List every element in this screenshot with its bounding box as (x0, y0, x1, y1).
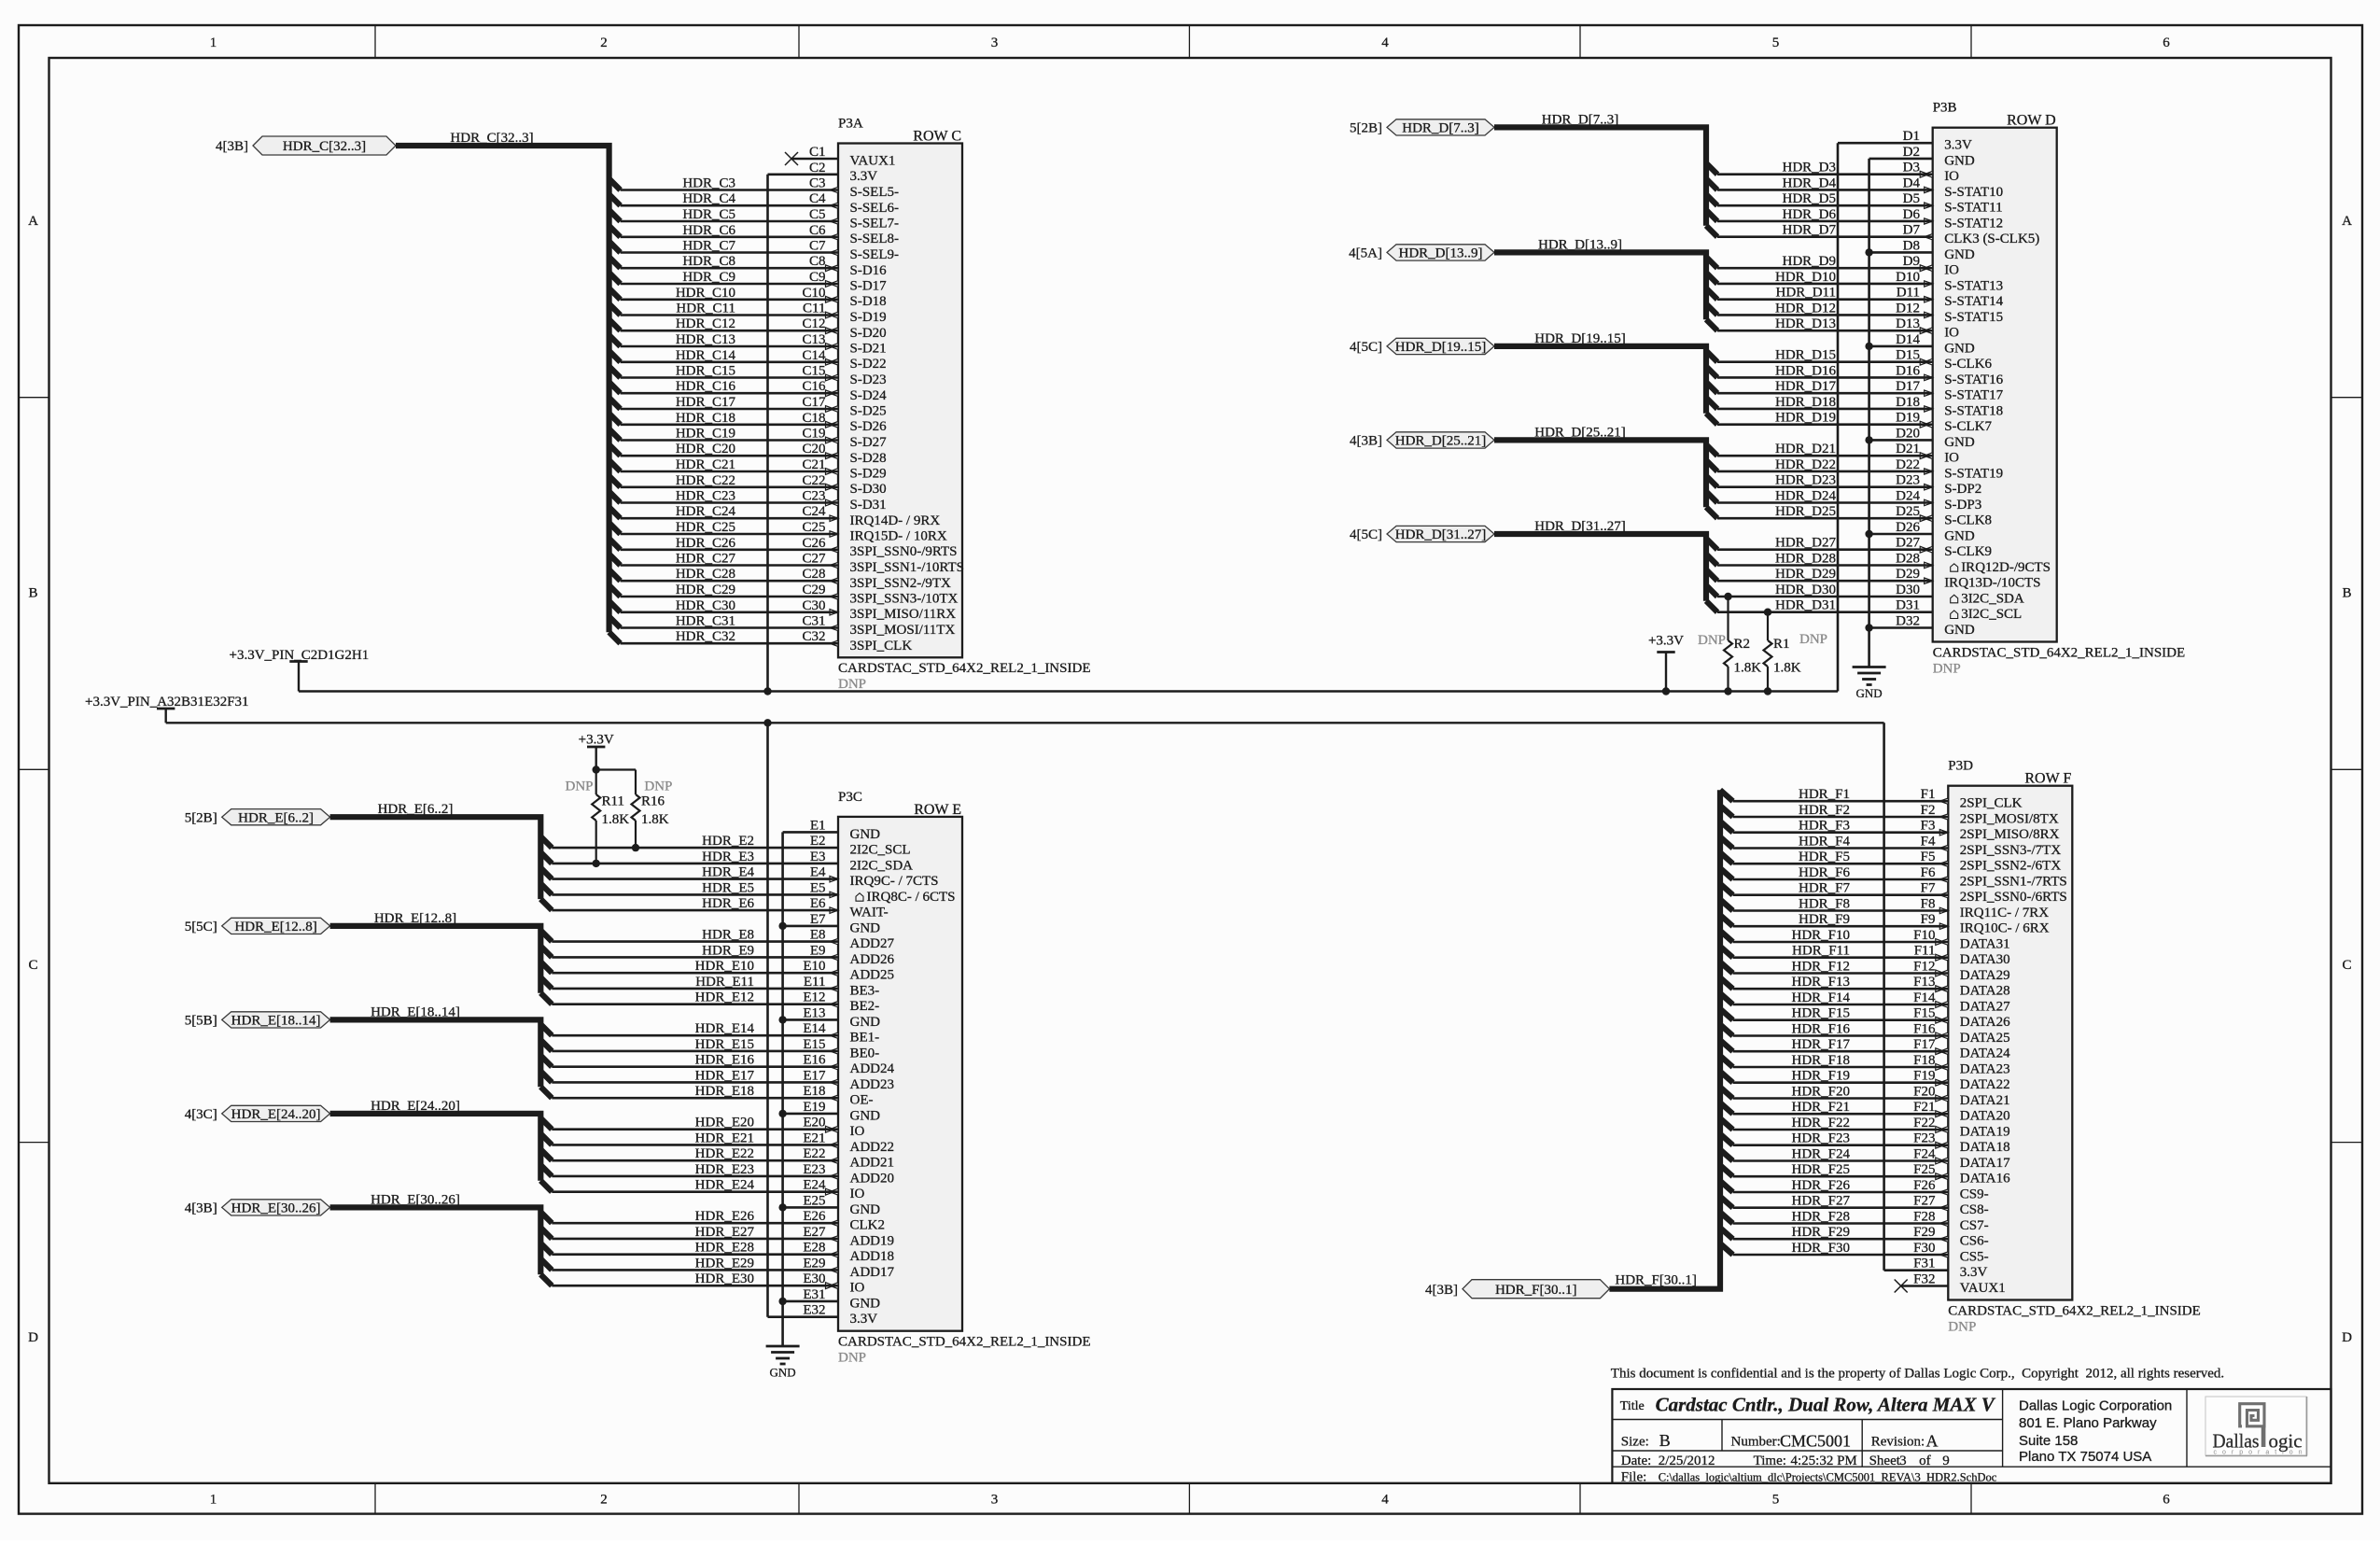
svg-text:HDR_F13: HDR_F13 (1791, 975, 1850, 990)
svg-text:IO: IO (850, 1124, 865, 1139)
svg-text:E18: E18 (803, 1084, 825, 1099)
svg-text:ADD19: ADD19 (850, 1233, 895, 1248)
svg-text:F27: F27 (1913, 1194, 1936, 1209)
svg-text:F17: F17 (1913, 1037, 1936, 1052)
svg-text:S-CLK7: S-CLK7 (1944, 419, 1992, 434)
svg-text:2SPI_SSN2-/6TX: 2SPI_SSN2-/6TX (1960, 859, 2062, 874)
svg-text:CS6-: CS6- (1960, 1234, 1989, 1249)
svg-text:F12: F12 (1913, 960, 1935, 975)
svg-text:D24: D24 (1896, 489, 1920, 504)
svg-text:F20: F20 (1913, 1085, 1935, 1100)
svg-text:CARDSTAC_STD_64X2_REL2_1_INSID: CARDSTAC_STD_64X2_REL2_1_INSIDE (838, 1335, 1090, 1350)
svg-text:HDR_D27: HDR_D27 (1775, 536, 1837, 551)
svg-text:S-STAT15: S-STAT15 (1944, 310, 2003, 325)
svg-text:CARDSTAC_STD_64X2_REL2_1_INSID: CARDSTAC_STD_64X2_REL2_1_INSIDE (1933, 646, 2185, 661)
svg-text:S-DP2: S-DP2 (1944, 482, 1981, 497)
svg-text:F15: F15 (1913, 1006, 1935, 1021)
svg-text:F7: F7 (1921, 881, 1936, 896)
svg-text:HDR_D16: HDR_D16 (1775, 363, 1837, 378)
svg-text:HDR_F22: HDR_F22 (1791, 1116, 1850, 1131)
svg-text:IRQ13D-/10CTS: IRQ13D-/10CTS (1944, 576, 2040, 591)
svg-text:HDR_E[24..20]: HDR_E[24..20] (371, 1099, 460, 1114)
svg-text:F18: F18 (1913, 1053, 1935, 1068)
svg-text:HDR_F14: HDR_F14 (1791, 990, 1850, 1005)
svg-text:C16: C16 (802, 379, 826, 394)
svg-text:1: 1 (210, 35, 217, 50)
svg-text:S-D28: S-D28 (850, 451, 887, 466)
svg-text:2: 2 (600, 35, 608, 50)
svg-text:2SPI_MISO/8RX: 2SPI_MISO/8RX (1960, 827, 2060, 842)
svg-text:HDR_D[13..9]: HDR_D[13..9] (1538, 237, 1622, 252)
svg-text:3SPI_CLK: 3SPI_CLK (850, 639, 913, 653)
svg-text:HDR_E17: HDR_E17 (695, 1068, 755, 1083)
svg-text:F31: F31 (1913, 1257, 1935, 1271)
svg-text:E3: E3 (810, 850, 826, 864)
svg-text:2SPI_CLK: 2SPI_CLK (1960, 796, 2023, 811)
svg-text:File:: File: (1621, 1470, 1647, 1485)
svg-text:HDR_D12: HDR_D12 (1775, 301, 1836, 316)
svg-text:HDR_D25: HDR_D25 (1775, 504, 1836, 519)
svg-text:HDR_C15: HDR_C15 (676, 364, 735, 379)
svg-text:CLK2: CLK2 (850, 1218, 886, 1233)
svg-text:ADD20: ADD20 (850, 1171, 895, 1186)
svg-text:HDR_D[7..3]: HDR_D[7..3] (1542, 112, 1619, 127)
svg-text:HDR_C[32..3]: HDR_C[32..3] (283, 139, 366, 154)
svg-text:GND: GND (850, 1108, 881, 1123)
svg-text:HDR_E2: HDR_E2 (702, 834, 754, 849)
svg-text:F2: F2 (1921, 803, 1936, 818)
svg-text:D19: D19 (1896, 411, 1920, 426)
svg-text:S-D24: S-D24 (850, 388, 888, 403)
svg-text:HDR_E[24..20]: HDR_E[24..20] (231, 1107, 321, 1122)
svg-text:D5: D5 (1903, 191, 1920, 206)
svg-text:HDR_D[19..15]: HDR_D[19..15] (1395, 340, 1487, 355)
svg-text:HDR_C14: HDR_C14 (676, 348, 736, 363)
svg-text:HDR_D13: HDR_D13 (1775, 316, 1836, 331)
svg-text:2I2C_SCL: 2I2C_SCL (850, 843, 911, 858)
svg-text:CARDSTAC_STD_64X2_REL2_1_INSID: CARDSTAC_STD_64X2_REL2_1_INSIDE (838, 661, 1090, 676)
svg-text:D32: D32 (1896, 614, 1920, 629)
svg-text:C6: C6 (809, 223, 826, 238)
svg-text:Title: Title (1620, 1399, 1645, 1413)
svg-text:S-SEL8-: S-SEL8- (850, 232, 900, 246)
svg-text:GND: GND (1944, 341, 1975, 356)
svg-text:HDR_F[30..1]: HDR_F[30..1] (1495, 1283, 1577, 1298)
svg-text:HDR_E8: HDR_E8 (702, 928, 754, 943)
svg-text:HDR_F5: HDR_F5 (1799, 850, 1850, 864)
svg-text:IRQ10C- / 6RX: IRQ10C- / 6RX (1960, 921, 2050, 936)
svg-text:D26: D26 (1896, 520, 1920, 535)
svg-text:3.3V: 3.3V (1960, 1265, 1988, 1280)
svg-text:R2: R2 (1734, 637, 1751, 652)
svg-text:IRQ14D- / 9RX: IRQ14D- / 9RX (850, 513, 941, 528)
svg-text:HDR_E18: HDR_E18 (695, 1084, 754, 1099)
svg-text:HDR_D[25..21]: HDR_D[25..21] (1395, 434, 1487, 449)
svg-text:of: of (1919, 1454, 1931, 1468)
svg-text:HDR_D28: HDR_D28 (1775, 552, 1836, 567)
svg-text:HDR_D[19..15]: HDR_D[19..15] (1534, 331, 1626, 346)
svg-text:6: 6 (2163, 35, 2170, 50)
svg-text:3: 3 (991, 35, 999, 50)
svg-text:IRQ9C- / 7CTS: IRQ9C- / 7CTS (850, 874, 939, 889)
svg-text:HDR_D30: HDR_D30 (1775, 583, 1836, 597)
svg-text:CS8-: CS8- (1960, 1202, 1989, 1217)
svg-text:HDR_D[31..27]: HDR_D[31..27] (1534, 519, 1626, 534)
svg-text:ROW F: ROW F (2024, 771, 2071, 787)
svg-text:HDR_E[30..26]: HDR_E[30..26] (231, 1201, 321, 1216)
svg-text:C11: C11 (803, 302, 825, 316)
svg-text:F29: F29 (1913, 1225, 1935, 1240)
svg-text:HDR_C19: HDR_C19 (676, 427, 735, 442)
svg-text:GND: GND (1944, 153, 1975, 168)
svg-text:HDR_C25: HDR_C25 (676, 520, 735, 535)
svg-text:S-D30: S-D30 (850, 482, 887, 497)
svg-text:F25: F25 (1913, 1162, 1935, 1177)
svg-text:6: 6 (2163, 1493, 2170, 1508)
svg-text:HDR_C7: HDR_C7 (682, 239, 735, 254)
svg-text:E19: E19 (803, 1100, 825, 1115)
svg-text:D20: D20 (1896, 426, 1920, 441)
svg-text:Time:: Time: (1754, 1454, 1786, 1468)
svg-text:HDR_D9: HDR_D9 (1782, 254, 1836, 269)
svg-text:HDR_E[12..8]: HDR_E[12..8] (374, 911, 456, 926)
svg-text:F11: F11 (1914, 944, 1936, 959)
svg-text:Dallas Logic Corporation: Dallas Logic Corporation (2019, 1398, 2172, 1414)
svg-text:4: 4 (1381, 35, 1389, 50)
svg-text:HDR_F16: HDR_F16 (1791, 1022, 1850, 1037)
svg-text:E15: E15 (803, 1037, 825, 1052)
svg-text:E1: E1 (810, 818, 826, 833)
svg-text:F4: F4 (1921, 835, 1936, 850)
svg-text:3SPI_SSN0-/9RTS: 3SPI_SSN0-/9RTS (850, 544, 958, 559)
svg-text:DNP: DNP (1948, 1320, 1976, 1335)
svg-text:HDR_E3: HDR_E3 (702, 850, 754, 864)
svg-text:5[2B]: 5[2B] (1350, 121, 1382, 136)
svg-text:D15: D15 (1896, 348, 1920, 363)
svg-text:DATA17: DATA17 (1960, 1156, 2010, 1171)
svg-text:HDR_F24: HDR_F24 (1791, 1147, 1850, 1162)
svg-text:VAUX1: VAUX1 (1960, 1281, 2006, 1296)
svg-text:1.8K: 1.8K (641, 812, 669, 827)
svg-text:S-SEL9-: S-SEL9- (850, 247, 900, 262)
svg-text:E26: E26 (803, 1209, 826, 1224)
svg-text:HDR_D7: HDR_D7 (1782, 223, 1836, 238)
svg-text:F28: F28 (1913, 1210, 1935, 1225)
svg-text:HDR_F17: HDR_F17 (1791, 1037, 1850, 1052)
svg-text:P3B: P3B (1933, 101, 1957, 116)
svg-text:5[5C]: 5[5C] (185, 920, 217, 934)
svg-text:IO: IO (1944, 451, 1959, 466)
svg-text:DATA20: DATA20 (1960, 1109, 2010, 1124)
svg-text:HDR_C11: HDR_C11 (676, 302, 735, 316)
svg-text:C27: C27 (802, 552, 826, 567)
svg-text:VAUX1: VAUX1 (850, 154, 896, 169)
svg-text:D29: D29 (1896, 567, 1920, 582)
svg-text:3SPI_SSN2-/9TX: 3SPI_SSN2-/9TX (850, 576, 952, 591)
svg-text:HDR_C26: HDR_C26 (676, 536, 736, 551)
svg-text:Plano TX 75074 USA: Plano TX 75074 USA (2019, 1449, 2151, 1465)
svg-text:ROW E: ROW E (914, 802, 961, 818)
svg-text:HDR_C18: HDR_C18 (676, 411, 735, 426)
svg-text:E20: E20 (803, 1116, 825, 1131)
svg-text:D30: D30 (1896, 583, 1920, 597)
svg-text:S-D20: S-D20 (850, 326, 887, 341)
svg-text:D18: D18 (1896, 395, 1920, 410)
svg-text:DNP: DNP (566, 780, 594, 794)
svg-text:D21: D21 (1896, 442, 1920, 456)
svg-text:D22: D22 (1896, 457, 1920, 472)
svg-text:HDR_E22: HDR_E22 (695, 1146, 754, 1161)
svg-text:2SPI_SSN0-/6RTS: 2SPI_SSN0-/6RTS (1960, 890, 2067, 905)
svg-text:E13: E13 (803, 1005, 825, 1020)
svg-text:GND: GND (770, 1366, 796, 1380)
svg-text:C2: C2 (809, 161, 826, 176)
svg-text:HDR_D29: HDR_D29 (1775, 567, 1836, 582)
svg-text:HDR_F6: HDR_F6 (1799, 865, 1851, 880)
svg-text:S-D17: S-D17 (850, 279, 888, 294)
svg-text:E32: E32 (803, 1303, 825, 1318)
svg-text:GND: GND (1944, 435, 1975, 450)
svg-text:9: 9 (1942, 1454, 1950, 1468)
svg-text:HDR_F19: HDR_F19 (1791, 1069, 1850, 1084)
svg-text:IRQ15D- / 10RX: IRQ15D- / 10RX (850, 529, 947, 544)
svg-text:HDR_D[13..9]: HDR_D[13..9] (1399, 246, 1483, 261)
svg-text:IO: IO (850, 1281, 865, 1296)
svg-text:GND: GND (1944, 623, 1975, 638)
svg-text:4:25:32 PM: 4:25:32 PM (1791, 1454, 1857, 1468)
svg-text:HDR_C23: HDR_C23 (676, 489, 735, 504)
svg-text:DNP: DNP (644, 780, 672, 794)
svg-text:DNP: DNP (1933, 662, 1961, 677)
svg-text:HDR_C[32..3]: HDR_C[32..3] (450, 131, 533, 146)
svg-text:GND: GND (850, 827, 881, 842)
svg-text:E9: E9 (810, 943, 826, 958)
svg-text:E16: E16 (803, 1053, 826, 1068)
svg-text:A: A (2342, 214, 2352, 229)
svg-text:F9: F9 (1921, 912, 1936, 927)
svg-text:+3.3V: +3.3V (1648, 634, 1684, 649)
svg-text:A: A (1926, 1432, 1939, 1451)
svg-text:C21: C21 (802, 457, 825, 472)
svg-text:801 E. Plano Parkway: 801 E. Plano Parkway (2019, 1415, 2157, 1431)
svg-text:ROW D: ROW D (2007, 113, 2056, 129)
svg-text:HDR_D5: HDR_D5 (1782, 191, 1836, 206)
svg-text:HDR_C21: HDR_C21 (676, 457, 735, 472)
svg-text:F19: F19 (1913, 1069, 1935, 1084)
svg-text:F10: F10 (1913, 928, 1935, 943)
svg-text:HDR_C17: HDR_C17 (676, 395, 736, 410)
svg-text:2SPI_SSN3-/7TX: 2SPI_SSN3-/7TX (1960, 843, 2062, 858)
svg-text:HDR_D19: HDR_D19 (1775, 411, 1836, 426)
svg-text:ROW C: ROW C (913, 129, 961, 145)
svg-text:S-D22: S-D22 (850, 357, 887, 372)
svg-text:S-STAT11: S-STAT11 (1944, 201, 2002, 216)
svg-text:2/25/2012: 2/25/2012 (1659, 1454, 1715, 1468)
svg-text:D10: D10 (1896, 270, 1920, 285)
svg-text:D: D (2342, 1330, 2352, 1345)
svg-text:C24: C24 (802, 504, 826, 519)
svg-text:C30: C30 (802, 598, 825, 613)
svg-text:DATA21: DATA21 (1960, 1093, 2010, 1108)
svg-text:Date:: Date: (1621, 1454, 1651, 1468)
svg-text:DATA27: DATA27 (1960, 1000, 2010, 1015)
svg-text:P3C: P3C (838, 790, 862, 805)
svg-text:5: 5 (1772, 35, 1780, 50)
svg-text:E4: E4 (810, 865, 826, 880)
svg-text:HDR_F7: HDR_F7 (1799, 881, 1851, 896)
svg-text:DATA25: DATA25 (1960, 1031, 2010, 1046)
svg-text:5[2B]: 5[2B] (185, 810, 217, 825)
svg-text:HDR_D18: HDR_D18 (1775, 395, 1836, 410)
svg-text:D31: D31 (1896, 598, 1920, 613)
svg-text:C10: C10 (802, 286, 825, 301)
svg-text:+3.3V: +3.3V (579, 733, 614, 748)
svg-text:HDR_F8: HDR_F8 (1799, 897, 1850, 912)
svg-text:HDR_D21: HDR_D21 (1775, 442, 1836, 456)
svg-text:E6: E6 (810, 896, 826, 911)
svg-text:Suite 158: Suite 158 (2019, 1433, 2078, 1449)
svg-text:DATA31: DATA31 (1960, 937, 2010, 952)
svg-text:DATA26: DATA26 (1960, 1015, 2010, 1030)
svg-text:HDR_E26: HDR_E26 (695, 1209, 755, 1224)
svg-text:WAIT-: WAIT- (850, 906, 889, 920)
svg-text:1.8K: 1.8K (1773, 661, 1801, 676)
svg-text:S-D31: S-D31 (850, 498, 887, 513)
svg-text:F22: F22 (1913, 1116, 1935, 1131)
svg-text:HDR_F12: HDR_F12 (1791, 960, 1850, 975)
svg-text:ADD23: ADD23 (850, 1077, 895, 1092)
svg-text:S-SEL7-: S-SEL7- (850, 217, 900, 232)
svg-text:A: A (28, 214, 38, 229)
svg-text:Number:: Number: (1731, 1435, 1781, 1450)
svg-text:BE0-: BE0- (850, 1046, 880, 1060)
svg-text:HDR_C32: HDR_C32 (676, 629, 735, 644)
svg-text:GND: GND (850, 1015, 881, 1030)
svg-text:HDR_E[30..26]: HDR_E[30..26] (371, 1192, 460, 1207)
svg-text:HDR_D3: HDR_D3 (1782, 161, 1836, 176)
svg-text:ogic: ogic (2269, 1430, 2303, 1453)
svg-text:D23: D23 (1896, 473, 1920, 488)
svg-text:HDR_E20: HDR_E20 (695, 1116, 754, 1131)
svg-text:HDR_C3: HDR_C3 (682, 176, 735, 191)
svg-text:CARDSTAC_STD_64X2_REL2_1_INSID: CARDSTAC_STD_64X2_REL2_1_INSIDE (1948, 1304, 2200, 1319)
svg-text:HDR_C13: HDR_C13 (676, 332, 735, 347)
svg-text:S-D16: S-D16 (850, 263, 888, 278)
svg-text:HDR_F25: HDR_F25 (1791, 1162, 1850, 1177)
svg-text:C3: C3 (809, 176, 826, 191)
svg-text:HDR_E10: HDR_E10 (695, 959, 754, 974)
svg-text:DATA30: DATA30 (1960, 952, 2010, 967)
svg-text:C20: C20 (802, 442, 825, 456)
svg-text:HDR_F21: HDR_F21 (1791, 1100, 1850, 1115)
svg-text:E25: E25 (803, 1193, 825, 1208)
svg-text:Revision:: Revision: (1871, 1435, 1925, 1450)
svg-text:HDR_D6: HDR_D6 (1782, 207, 1836, 222)
svg-text:P3D: P3D (1948, 759, 1973, 774)
svg-text:HDR_E[6..2]: HDR_E[6..2] (378, 802, 454, 817)
svg-text:S-STAT12: S-STAT12 (1944, 216, 2003, 231)
svg-text:C31: C31 (802, 614, 825, 629)
svg-text:HDR_C22: HDR_C22 (676, 473, 735, 488)
svg-text:Size:: Size: (1621, 1435, 1649, 1450)
svg-text:4[3B]: 4[3B] (1350, 434, 1382, 449)
svg-text:D4: D4 (1903, 176, 1921, 190)
svg-text:HDR_C20: HDR_C20 (676, 442, 735, 456)
svg-text:ADD25: ADD25 (850, 968, 895, 983)
svg-text:E31: E31 (803, 1287, 825, 1302)
svg-text:2: 2 (600, 1493, 608, 1508)
svg-text:R1: R1 (1773, 637, 1790, 652)
svg-text:5[5B]: 5[5B] (185, 1014, 217, 1029)
svg-text:F24: F24 (1913, 1147, 1936, 1162)
svg-text:IO: IO (1944, 169, 1959, 184)
svg-text:CS7-: CS7- (1960, 1218, 1989, 1233)
svg-text:HDR_F29: HDR_F29 (1791, 1225, 1850, 1240)
svg-text:S-D18: S-D18 (850, 294, 887, 309)
svg-text:S-STAT18: S-STAT18 (1944, 403, 2003, 418)
svg-text:HDR_D4: HDR_D4 (1782, 176, 1836, 190)
svg-text:S-D25: S-D25 (850, 404, 887, 419)
svg-text:ADD21: ADD21 (850, 1156, 895, 1171)
svg-text:CS5-: CS5- (1960, 1250, 1989, 1265)
svg-text:ADD26: ADD26 (850, 952, 895, 967)
svg-text:E12: E12 (803, 990, 825, 1005)
svg-text:HDR_F2: HDR_F2 (1799, 803, 1850, 818)
svg-text:E17: E17 (803, 1068, 826, 1083)
svg-text:HDR_E21: HDR_E21 (695, 1131, 754, 1145)
svg-text:E14: E14 (803, 1021, 826, 1036)
svg-text:F14: F14 (1913, 990, 1936, 1005)
svg-text:E30: E30 (803, 1271, 825, 1286)
svg-text:HDR_C24: HDR_C24 (676, 504, 736, 519)
svg-text:F16: F16 (1913, 1022, 1936, 1037)
svg-text:HDR_D[25..21]: HDR_D[25..21] (1534, 425, 1626, 440)
svg-text:C23: C23 (802, 489, 825, 504)
svg-text:ADD24: ADD24 (850, 1061, 895, 1076)
svg-text:3.3V: 3.3V (850, 169, 878, 184)
svg-text:HDR_C8: HDR_C8 (682, 254, 735, 269)
svg-text:Sheet: Sheet (1869, 1454, 1901, 1468)
svg-text:S-STAT14: S-STAT14 (1944, 294, 2003, 309)
svg-text:S-D29: S-D29 (850, 467, 887, 482)
svg-text:DNP: DNP (1698, 633, 1726, 648)
svg-text:C:\dallas_logic\altium_dlc\Pro: C:\dallas_logic\altium_dlc\Projects\CMC5… (1659, 1471, 1997, 1484)
svg-text:E24: E24 (803, 1178, 826, 1193)
svg-text:R11: R11 (602, 794, 624, 809)
svg-text:HDR_F18: HDR_F18 (1791, 1053, 1850, 1068)
svg-text:CLK3 (S-CLK5): CLK3 (S-CLK5) (1944, 232, 2039, 246)
svg-text:E28: E28 (803, 1241, 825, 1256)
svg-text:1.8K: 1.8K (602, 812, 630, 827)
svg-text:D28: D28 (1896, 552, 1920, 567)
svg-text:HDR_E11: HDR_E11 (695, 975, 754, 990)
svg-text:E2: E2 (810, 834, 826, 849)
svg-text:HDR_F9: HDR_F9 (1799, 912, 1850, 927)
svg-text:ADD22: ADD22 (850, 1140, 895, 1155)
svg-text:BE1-: BE1- (850, 1031, 880, 1046)
svg-text:HDR_F23: HDR_F23 (1791, 1131, 1850, 1146)
svg-text:HDR_E9: HDR_E9 (702, 943, 754, 958)
svg-text:4[3B]: 4[3B] (216, 139, 248, 154)
svg-text:F21: F21 (1913, 1100, 1935, 1115)
svg-text:3: 3 (991, 1493, 999, 1508)
svg-text:D8: D8 (1903, 238, 1920, 253)
svg-text:GND: GND (1944, 247, 1975, 262)
svg-text:4[5C]: 4[5C] (1350, 527, 1382, 542)
svg-text:C8: C8 (809, 254, 826, 269)
svg-text:C13: C13 (802, 332, 825, 347)
svg-text:HDR_C9: HDR_C9 (682, 270, 735, 285)
